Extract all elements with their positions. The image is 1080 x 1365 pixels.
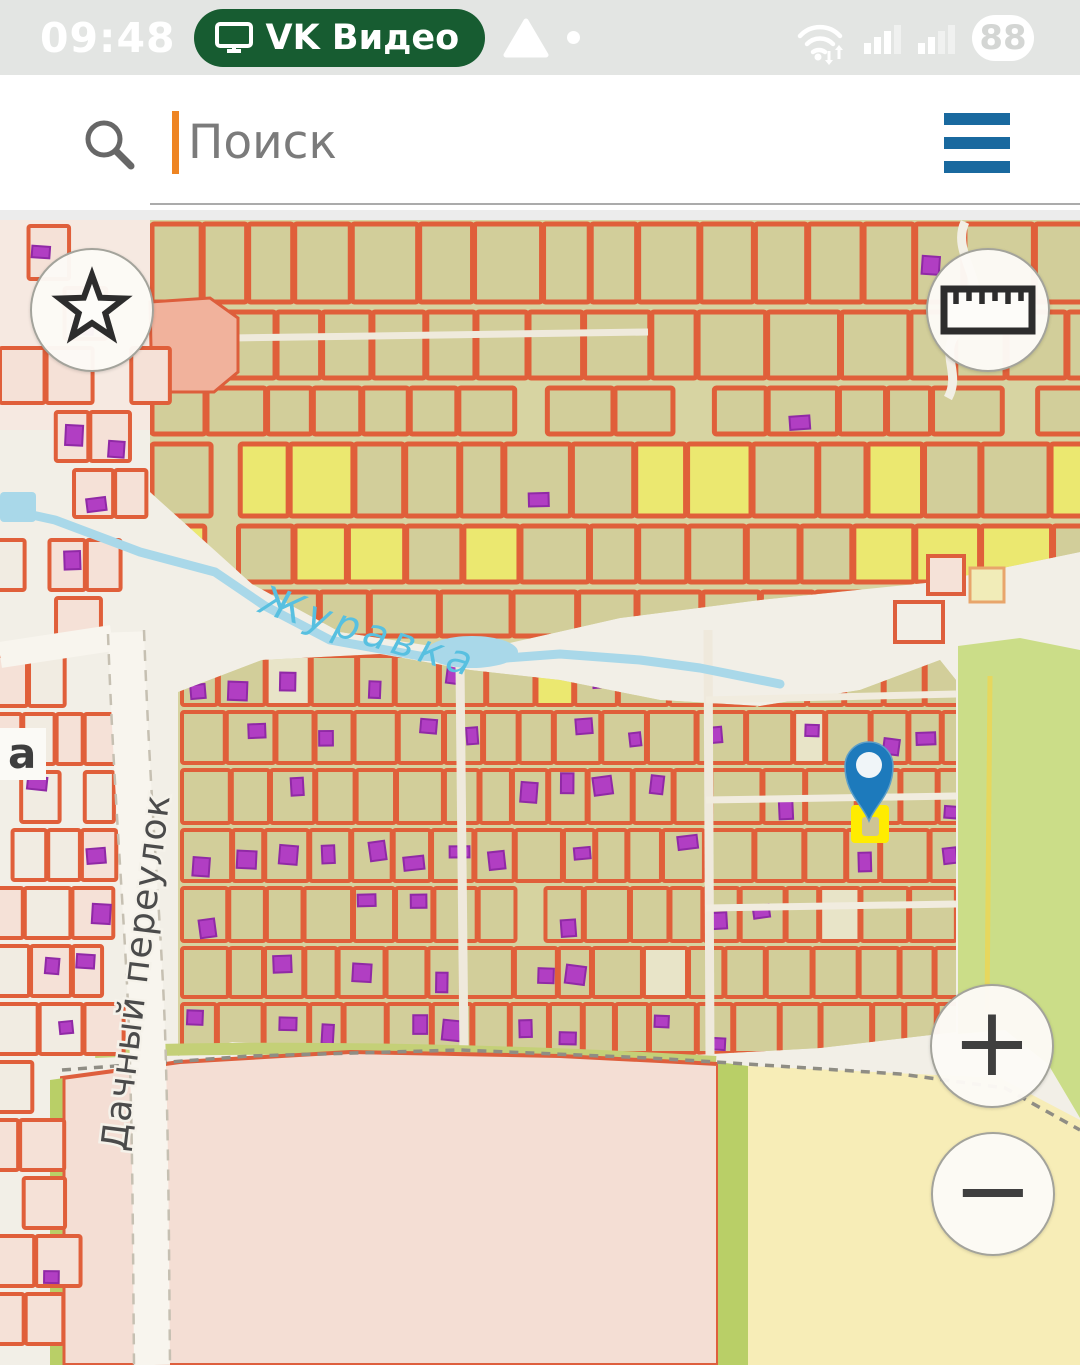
search-bar-shadow (0, 210, 1080, 220)
cellular-signal-icon-1 (864, 18, 904, 58)
side-road (0, 638, 112, 655)
status-time: 09:48 (40, 14, 176, 62)
warning-icon (503, 17, 549, 59)
village-road (708, 630, 710, 1056)
field-path (987, 676, 990, 1012)
zoom-out-button[interactable]: − (931, 1132, 1055, 1256)
menu-button[interactable] (944, 113, 1010, 173)
partial-street-label: a (8, 729, 36, 778)
pin-hole (856, 752, 882, 778)
status-bar: 09:48 VK Видео (0, 0, 1080, 75)
search-input[interactable] (184, 105, 804, 180)
status-bar-left: 09:48 VK Видео (0, 9, 580, 67)
text-cursor (172, 111, 179, 174)
search-bar (0, 75, 1080, 210)
cast-badge[interactable]: VK Видео (194, 9, 486, 67)
cast-badge-label: VK Видео (266, 18, 460, 58)
star-icon (47, 265, 137, 355)
row-road (706, 796, 956, 800)
map-parcels-mid (182, 656, 984, 1053)
battery-indicator: 88 (972, 15, 1034, 61)
menu-icon-bar (944, 113, 1010, 125)
status-bar-right: 88 (792, 11, 1080, 65)
ruler-icon (938, 280, 1038, 340)
wifi-icon (792, 11, 850, 65)
parcel (928, 556, 964, 594)
menu-icon-bar (944, 161, 1010, 173)
zoom-in-icon: + (952, 994, 1032, 1090)
map-canvas[interactable]: Дачный переулок Журавка a (0, 220, 1080, 1365)
green-strip-mid (718, 1062, 748, 1365)
screen-cast-icon (214, 21, 254, 55)
row-road (706, 904, 956, 908)
cellular-signal-icon-2 (918, 18, 958, 58)
battery-percent: 88 (979, 18, 1026, 58)
measure-button[interactable] (926, 248, 1050, 372)
search-bar-wrap (0, 75, 1080, 220)
search-underline (150, 203, 1080, 205)
parcel (970, 568, 1004, 602)
menu-icon-bar (944, 137, 1010, 149)
zoom-out-icon: − (953, 1142, 1033, 1238)
search-icon (78, 113, 140, 175)
zoom-in-button[interactable]: + (930, 984, 1054, 1108)
selected-parcel-building (862, 817, 879, 836)
village-road (460, 666, 464, 1054)
phone-screen: 09:48 VK Видео (0, 0, 1080, 1365)
favorites-button[interactable] (30, 248, 154, 372)
cadastral-map: Дачный переулок Журавка a (0, 220, 1080, 1365)
notification-dot-icon (567, 31, 580, 44)
